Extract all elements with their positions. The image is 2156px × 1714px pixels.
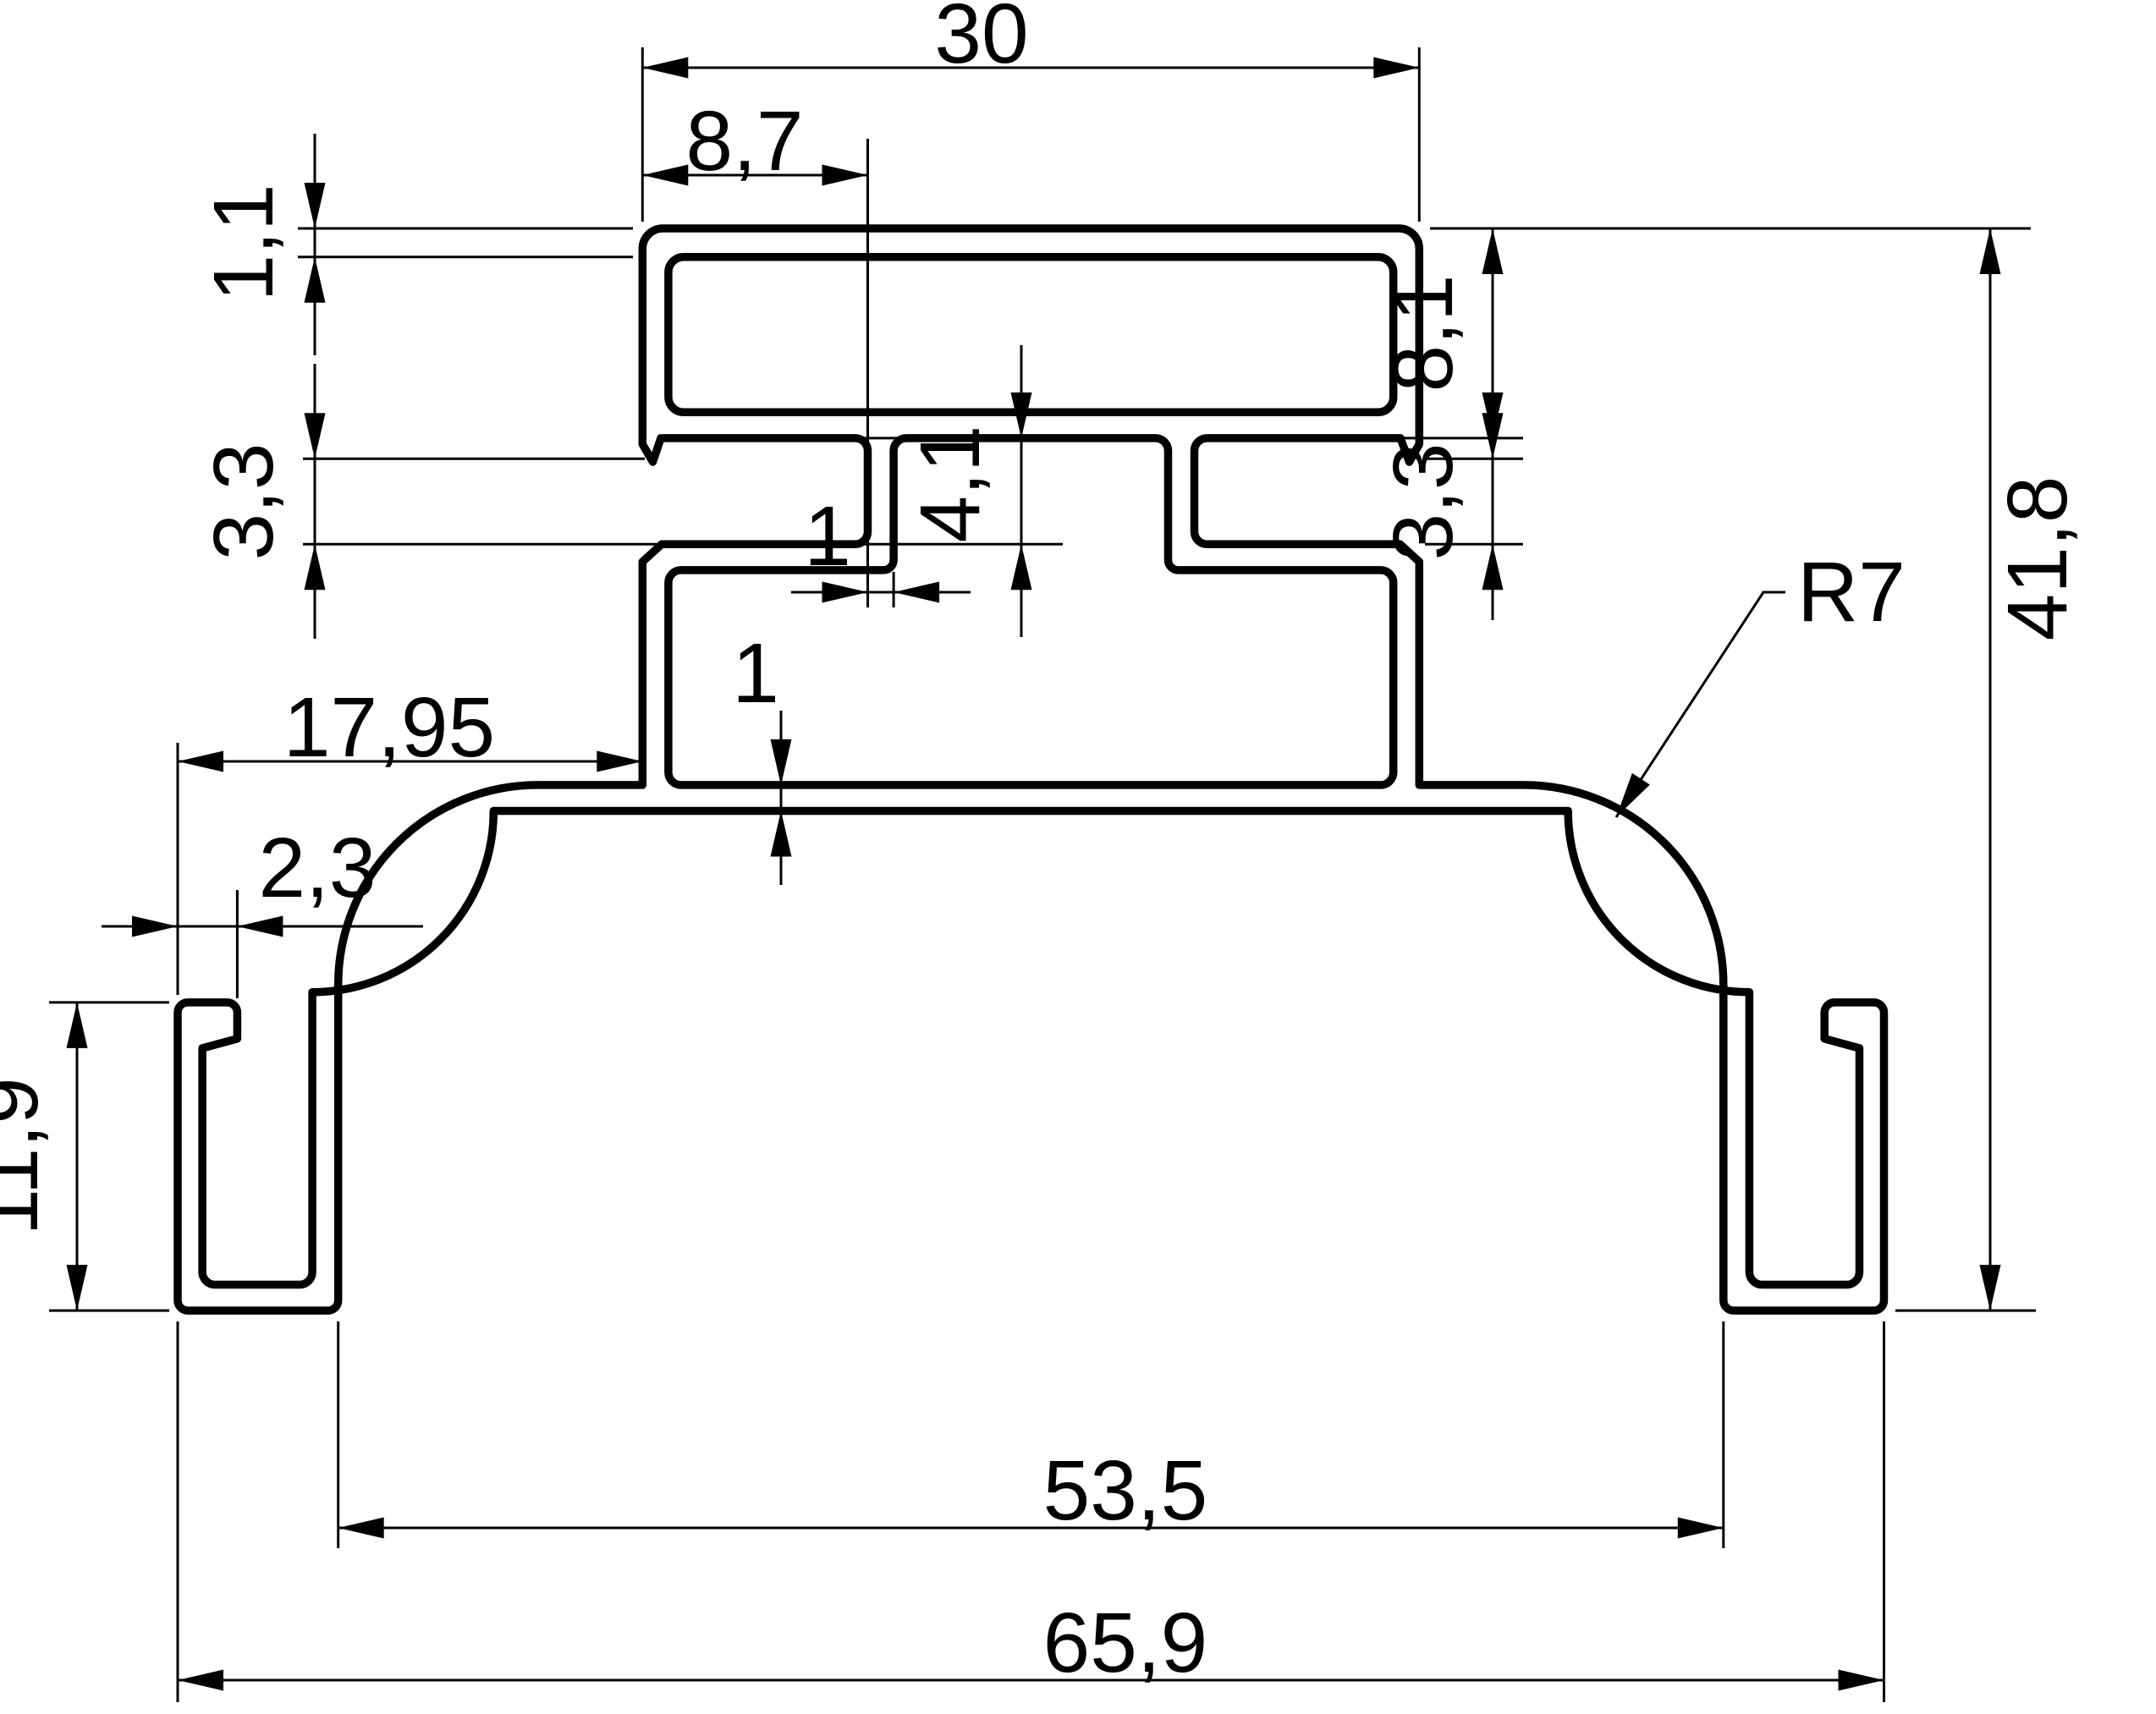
dimension-label: 8,1 (1376, 274, 1471, 392)
dimension-label: 17,95 (283, 680, 495, 775)
arrowhead (1678, 1518, 1724, 1539)
dimension-top-wall: 1,1 (196, 134, 633, 355)
profile-central-chamber (668, 438, 1394, 785)
arrowhead (1980, 1265, 2001, 1310)
dimension-foot-lip: 2,3 (102, 821, 423, 998)
dimension-label: 1,1 (196, 184, 291, 301)
dimension-label: 4,1 (903, 425, 998, 542)
arrowhead (132, 916, 178, 937)
dimension-feet-span: 53,5 (338, 1321, 1724, 1548)
dimension-right-slot-mouth: 3,3 (1376, 382, 1523, 620)
dimension-label: 3,3 (196, 442, 291, 560)
dimension-label: 3,3 (1376, 442, 1471, 560)
arrowhead (305, 183, 326, 228)
arrowhead (822, 165, 868, 186)
arrowhead (305, 413, 326, 459)
arrowhead (338, 1518, 384, 1539)
dimension-overall-height: 41,8 (1895, 228, 2085, 1310)
dimension-corner-radius: R7 (1608, 545, 1906, 823)
arrowhead (1980, 228, 2001, 274)
arrowhead (642, 58, 688, 79)
arrowhead (597, 751, 642, 772)
dimension-web-offset: 17,95 (178, 680, 642, 995)
dimension-label: 30 (934, 0, 1028, 81)
dimension-label: 1 (732, 626, 779, 721)
arrowhead (1482, 413, 1504, 459)
dimension-label: 8,7 (685, 94, 803, 189)
technical-drawing: 30 8,7 1,1 3,3 4,1 (0, 0, 2156, 1714)
arrowhead (305, 257, 326, 303)
dimension-left-slot-mouth: 3,3 (196, 364, 657, 639)
arrowhead (67, 1003, 88, 1048)
arrowhead (642, 165, 688, 186)
arrowhead (1011, 544, 1032, 590)
dimension-base-thickness: 1 (732, 626, 791, 885)
arrowhead (1839, 1670, 1884, 1691)
arrowhead (1373, 58, 1419, 79)
radius-label: R7 (1797, 545, 1906, 640)
dimension-label: 65,9 (1043, 1596, 1208, 1690)
arrowhead (67, 1265, 88, 1310)
arrowhead (237, 916, 283, 937)
dimension-foot-height: 11,9 (0, 1003, 169, 1310)
arrowhead (1482, 544, 1504, 590)
dimension-label: 53,5 (1043, 1443, 1208, 1538)
dimension-label: 2,3 (258, 821, 376, 915)
arrowhead (305, 544, 326, 590)
dimension-overall-width: 65,9 (178, 1321, 1884, 1702)
arrowhead (771, 739, 792, 785)
arrowhead (1482, 228, 1504, 274)
arrowhead (894, 582, 939, 603)
dimension-label: 1 (804, 489, 851, 584)
dimension-label: 11,9 (0, 1077, 56, 1235)
profile-top-chamber (668, 257, 1394, 413)
arrowhead (822, 582, 868, 603)
drawing-canvas: 30 8,7 1,1 3,3 4,1 (0, 0, 2156, 1714)
dimension-right-box-height: 8,1 (1376, 228, 2031, 438)
arrowhead (178, 1670, 223, 1691)
dimension-label: 41,8 (1990, 476, 2085, 641)
arrowhead (178, 751, 223, 772)
arrowhead (771, 811, 792, 857)
